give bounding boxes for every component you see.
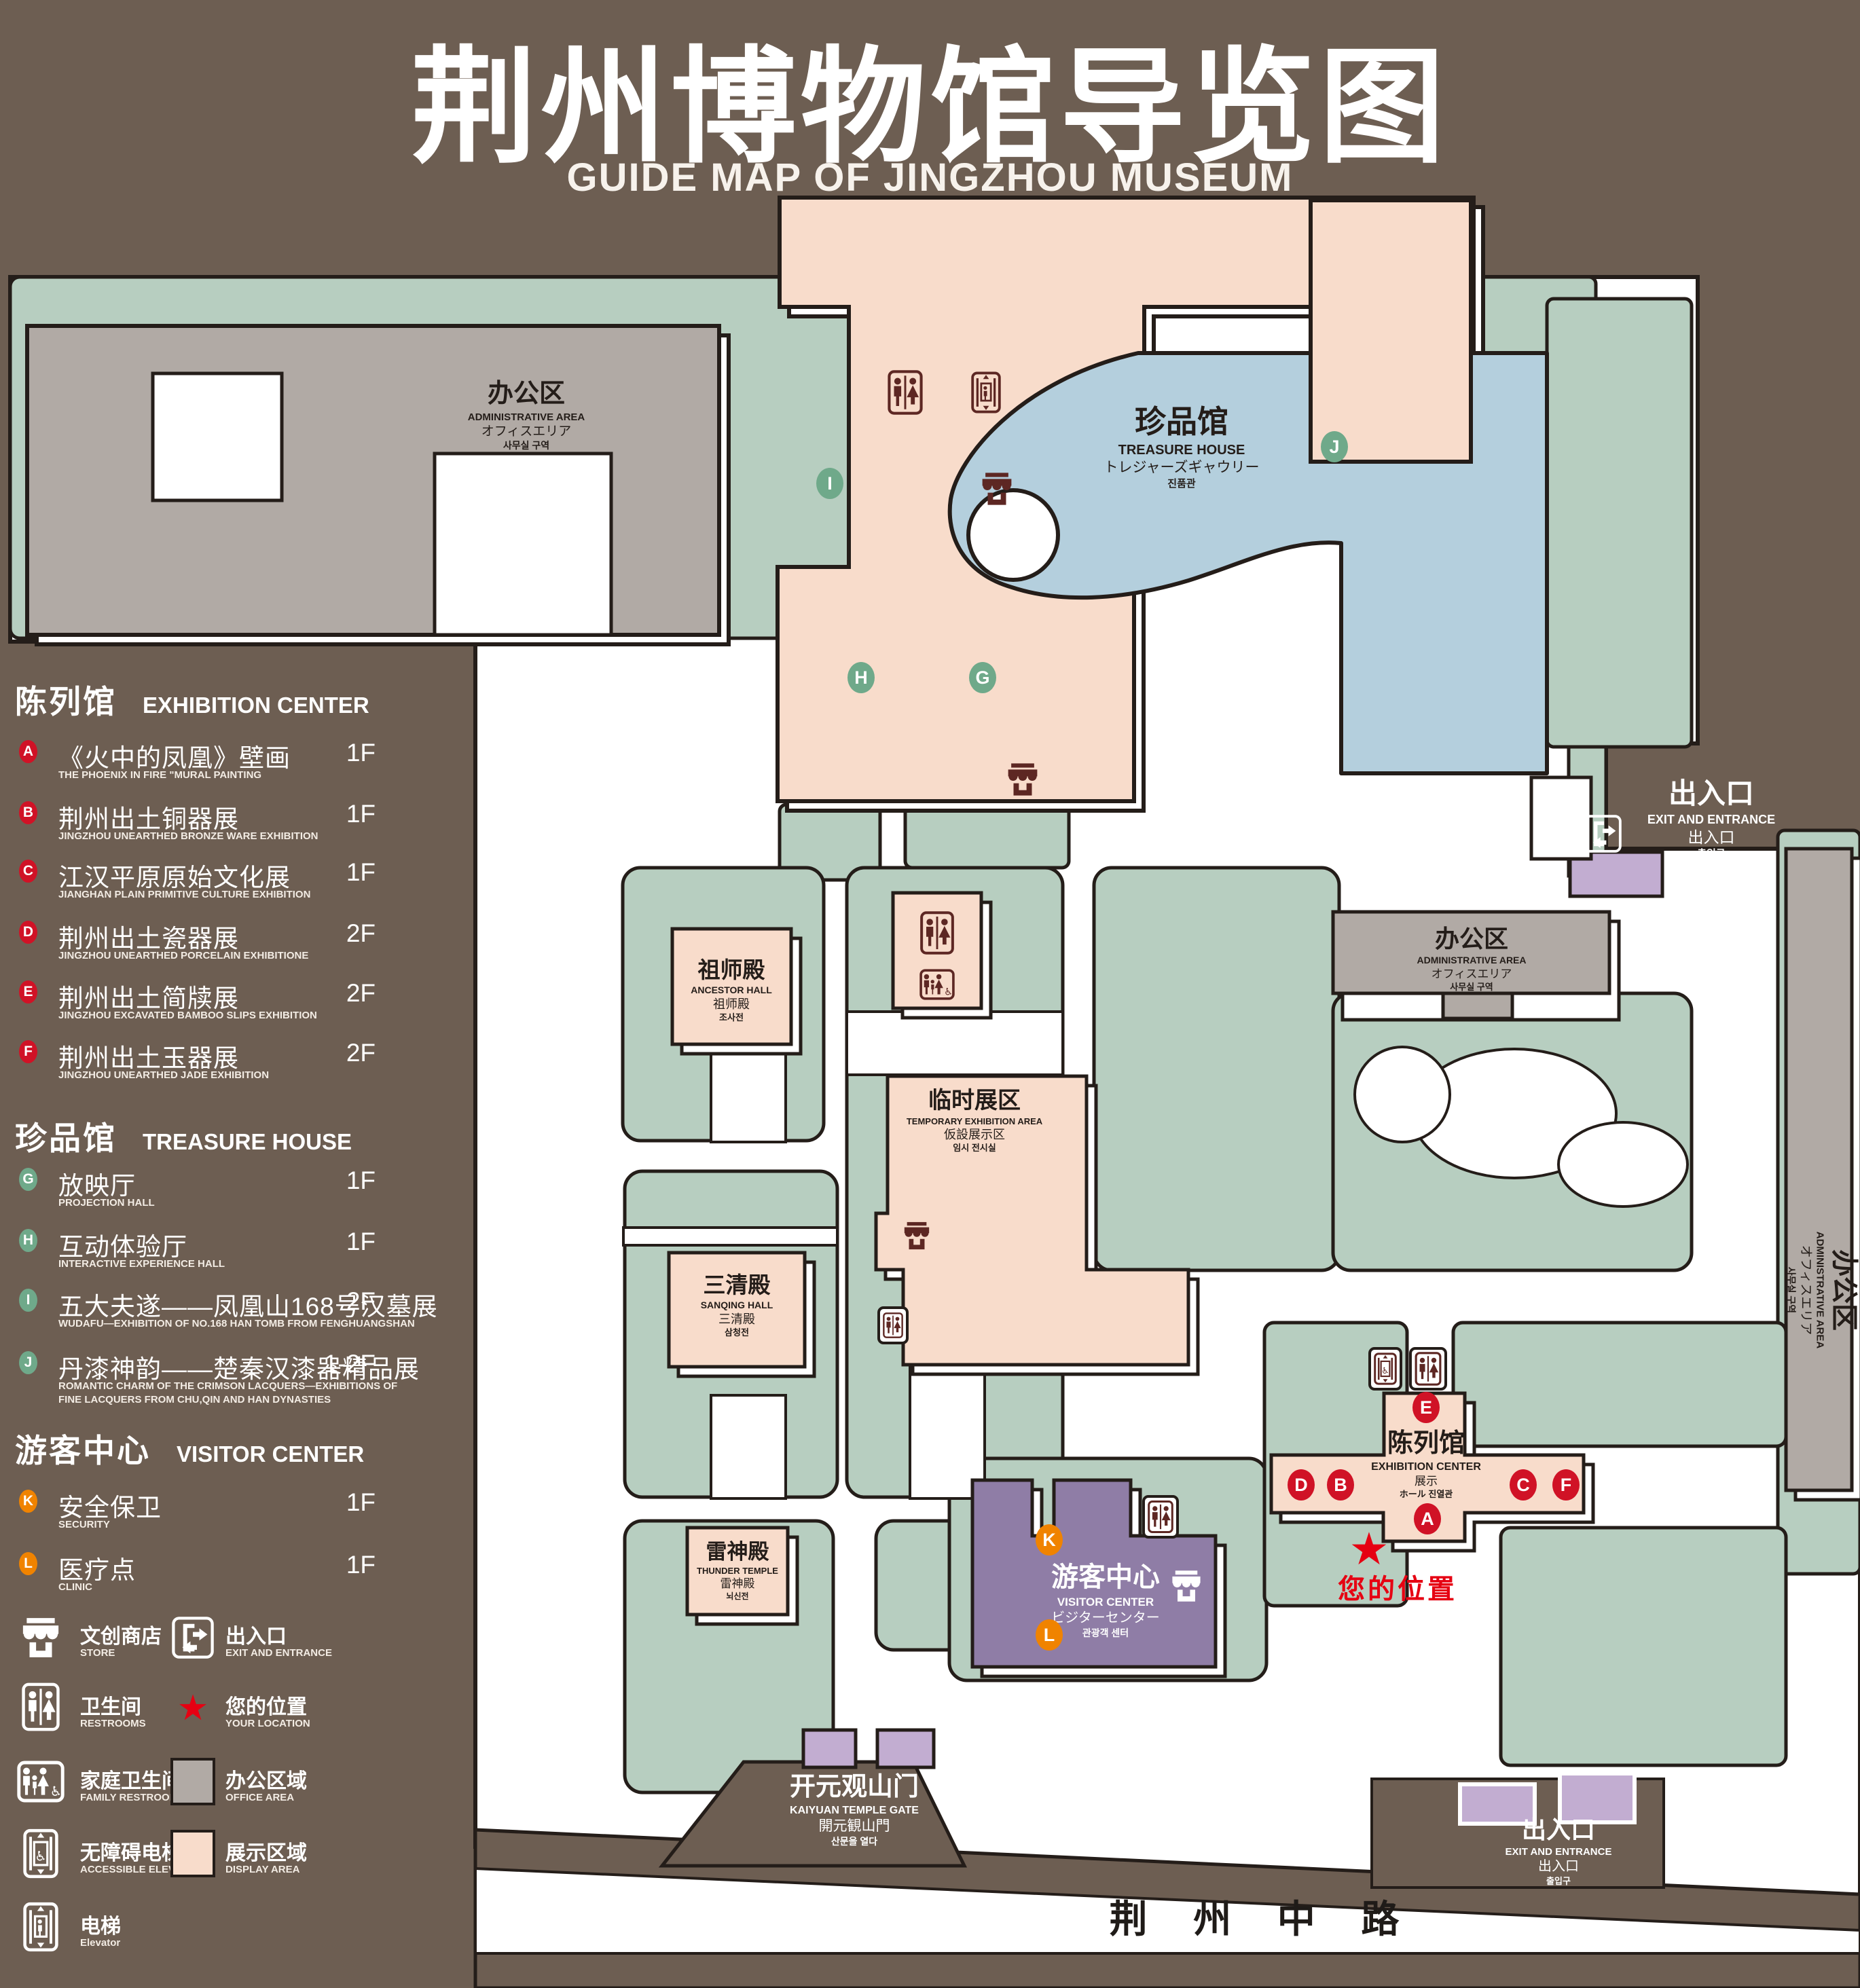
family-restroom-icon [919,969,955,1000]
treasure-label: 珍品馆 TREASURE HOUSE トレジャーズギャウリー 진품관 [1104,402,1260,491]
legend-office-area-sublabel: OFFICE AREA [225,1792,294,1803]
legend-family-restrooms-label: 家庭卫生间 [80,1764,182,1794]
legend-display-area-label: 展示区域 [225,1836,307,1866]
accessible-elevator-icon [1368,1347,1402,1391]
restroom-icon [887,370,924,415]
store-icon [901,1221,932,1251]
thunder-label: 雷神殿 THUNDER TEMPLE 雷神殿 뇌신전 [697,1539,778,1602]
display-area-swatch [170,1830,215,1877]
legend-section-treasure-house: 珍品馆 TREASURE HOUSE [15,1112,352,1159]
lawn-exhibition-right [1453,1323,1786,1446]
store-icon [979,471,1015,507]
legend-office-area-label: 办公区域 [225,1764,307,1794]
legend-item-a: A 《火中的凤凰》壁画 THE PHOENIX IN FIRE "MURAL P… [19,737,440,798]
exit-tr-path [1531,777,1591,859]
gate-label: 开元观山门 KAIYUAN TEMPLE GATE 開元観山門 산문을 열다 [790,1771,919,1848]
garden-path-blob-2 [1558,1122,1688,1207]
legend-elevator-label: 电梯 [80,1909,121,1939]
store-icon [1169,1569,1204,1603]
store-icon [1004,762,1041,797]
legend-item-e: E 荆州出土简牍展 JINGZHOU EXCAVATED BAMBOO SLIP… [19,978,440,1039]
legend-item-l: L 医疗点 CLINIC 1F [19,1549,440,1610]
legend-restrooms-sublabel: RESTROOMS [80,1718,146,1729]
lawn-garden-mid [1094,868,1339,1270]
legend-exit-sublabel: EXIT AND ENTRANCE [225,1647,332,1659]
restroom-icon [919,911,955,955]
accessible-elevator-icon [23,1828,58,1879]
marker-i: I [816,468,843,499]
temporary-label: 临时展区 TEMPORARY EXHIBITION AREA 仮設展示区 임시 … [907,1086,1042,1154]
guide-map-page: ♿ ♿ [0,0,1860,1988]
legend-family-restrooms-sublabel: FAMILY RESTROOMS [80,1792,185,1803]
legend-item-g: G 放映厅 PROJECTION HALL 1F [19,1165,440,1226]
your-location-star: ★ [1349,1527,1389,1572]
marker-f: F [1552,1469,1580,1501]
marker-j: J [1321,431,1348,462]
marker-h: H [847,662,875,693]
legend-display-area-sublabel: DISPLAY AREA [225,1864,299,1875]
legend-item-i: I 五大夫遂——凤凰山168号汉墓展 WUDAFU—EXHIBITION OF … [19,1286,440,1347]
exit-entrance-icon [1584,815,1622,853]
marker-g: G [969,662,996,693]
elevator-icon [23,1902,58,1952]
legend-item-h: H 互动体验厅 INTERACTIVE EXPERIENCE HALL 1F [19,1226,440,1287]
family-restroom-icon [17,1761,65,1803]
exit-entrance-icon [172,1617,214,1659]
admin-right-tab [1443,993,1512,1018]
elevator-icon [971,370,1001,415]
marker-k: K [1036,1524,1063,1556]
legend-item-f: F 荆州出土玉器展 JINGZHOU UNEARTHED JADE EXHIBI… [19,1037,440,1099]
gate-pillar-right [877,1730,934,1767]
lawn-right-of-pond [1547,299,1692,747]
legend-elevator-sublabel: Elevator [80,1937,120,1949]
legend-store-label: 文创商店 [80,1619,162,1649]
ancestor-label: 祖师殿 ANCESTOR HALL 祖师殿 조사전 [691,956,772,1024]
walkway-central [847,1012,1063,1075]
walkway-ancestor [711,1046,786,1142]
legend-item-j: J 丹漆神韵——楚秦汉漆器精品展 ROMANTIC CHARM OF THE C… [19,1348,440,1410]
road-label: 荆 州 中 路 [1110,1889,1417,1944]
legend-exit-label: 出入口 [225,1619,287,1649]
marker-e: E [1412,1392,1440,1423]
legend-item-c: C 江汉平原原始文化展 JIANGHAN PLAIN PRIMITIVE CUL… [19,857,440,918]
legend-item-d: D 荆州出土瓷器展 JINGZHOU UNEARTHED PORCELAIN E… [19,918,440,979]
legend-item-b: B 荆州出土铜器展 JINGZHOU UNEARTHED BRONZE WARE… [19,798,440,860]
restroom-icon [877,1306,909,1344]
walkway-sanqing-v [711,1395,786,1498]
legend-section-visitor-center: 游客中心 VISITOR CENTER [15,1424,364,1471]
store-icon [18,1616,63,1659]
office-area-swatch [170,1758,215,1805]
marker-d: D [1288,1469,1315,1501]
visitor-label: 游客中心 VISITOR CENTER ビジターセンター 관광객 센터 [1051,1560,1160,1639]
restroom-icon [1142,1495,1179,1539]
admin-tl-courtyard-1 [153,373,282,500]
walkway-sanqing-h [623,1228,837,1245]
legend-section-exhibition-center: 陈列馆 EXHIBITION CENTER [15,676,369,722]
legend-your-location-sublabel: YOUR LOCATION [225,1718,310,1729]
legend-your-location-label: 您的位置 [225,1690,307,1720]
legend-store-sublabel: STORE [80,1647,115,1659]
gate-pillar-left [803,1730,856,1767]
restroom-icon [22,1682,60,1731]
lawn-below-treasure-2 [905,805,1069,868]
admin-right-label: 办公区 ADMINISTRATIVE AREA オフィスエリア 사무실 구역 [1417,923,1527,993]
marker-c: C [1510,1469,1537,1501]
marker-a: A [1414,1503,1441,1534]
lawn-exhibition-bottom [1501,1528,1786,1765]
admin-far-label: 办公区 ADMINISTRATIVE AREA オフィスエリア 사무실 구역 [1785,1232,1860,1349]
treasure-right-wing [1311,200,1471,462]
sanqing-label: 三清殿 SANQING HALL 三清殿 삼청전 [701,1271,773,1339]
exit-top-right-label: 出入口 EXIT AND ENTRANCE 出入口 출입구 [1647,775,1775,860]
admin-far-building [1786,849,1852,1490]
legend-item-k: K 安全保卫 SECURITY 1F [19,1487,440,1548]
legend-restrooms-label: 卫生间 [80,1690,141,1720]
exhibition-label: 陈列馆 EXHIBITION CENTER 展示 ホール 진열관 [1371,1427,1481,1500]
your-location-star-icon: ★ [177,1691,209,1726]
admin-tl-courtyard-2 [435,454,611,635]
marker-b: B [1327,1469,1354,1501]
admin-tl-label: 办公区 ADMINISTRATIVE AREA オフィスエリア 사무실 구역 [468,378,585,452]
restroom-icon [1409,1347,1447,1391]
admin-tl-building [27,326,719,635]
garden-path-blob-3 [1355,1047,1450,1142]
your-location-label: 您的位置 [1338,1567,1457,1606]
marker-l: L [1036,1619,1063,1651]
exit-bottom-right-label: 出入口 EXIT AND ENTRANCE 出入口 출입구 [1506,1814,1612,1887]
legend-accessible-elevator-label: 无障碍电梯 [80,1836,182,1866]
